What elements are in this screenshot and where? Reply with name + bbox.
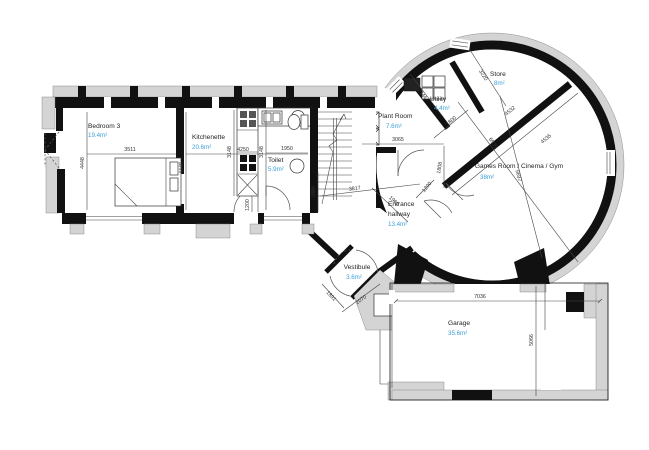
room-label-garage: Garage (448, 320, 470, 327)
window-icon (86, 213, 142, 224)
room-area-games-room: 38m² (480, 174, 494, 181)
wing-north-wall (53, 86, 377, 108)
room-label-utility: Utility (430, 96, 447, 103)
dim-units-recess: 1200 (245, 199, 251, 211)
room-label-bedroom3: Bedroom 3 (88, 123, 121, 130)
rear-door-opening (541, 374, 561, 390)
dim-plant-width: 3065 (392, 137, 404, 143)
dim-units-run-left: 3148 (227, 146, 233, 158)
garage-zone (388, 283, 608, 400)
room-area-vestibule: 3.6m² (346, 274, 362, 281)
masonry-pier (566, 292, 584, 312)
room-label-vestibule: Vestibule (344, 264, 371, 271)
bed-icon (115, 158, 181, 206)
room-area-plant-room: 7.6m² (386, 123, 402, 130)
dim-toilet-width: 1950 (281, 146, 293, 152)
dim-garage-depth: 5066 (529, 334, 535, 346)
dim-garage-width: 7036 (474, 294, 486, 300)
wing-south-wall (62, 213, 314, 238)
dim-kitchenette-depth: 4448 (179, 162, 185, 174)
room-area-bedroom3: 19.4m² (88, 132, 107, 139)
room-label-plant-room: Plant Room (378, 113, 413, 120)
room-area-entrance: 13.4m² (388, 221, 407, 228)
room-area-utility: 4.4m² (434, 105, 450, 112)
floor-plan-canvas: 3511 4250 4448 4448 3148 3148 1950 1200 … (0, 0, 649, 450)
room-area-garage: 35.6m² (448, 330, 467, 337)
dim-stair-hall: 1884 (311, 186, 317, 198)
door-opening (234, 213, 258, 224)
room-label-store: Store (490, 71, 506, 78)
dim-units-run-right: 3148 (259, 146, 265, 158)
washbasin-icon (290, 159, 304, 173)
garage-floor (392, 284, 596, 388)
room-label-kitchenette: Kitchenette (192, 134, 225, 141)
room-area-kitchenette: 20.6m² (192, 144, 211, 151)
garage-door (452, 390, 492, 400)
garage-south-wall (392, 390, 608, 400)
dim-kitchenette-width: 4250 (237, 147, 249, 153)
dim-bedroom-depth: 4448 (80, 157, 86, 169)
dim-vestibule-a: 1891 (325, 290, 337, 303)
side-door-opening (389, 290, 395, 304)
window-icon (604, 150, 615, 176)
room-label-entrance-line1: Entrance (388, 201, 415, 208)
room-label-entrance-line2: hallway (388, 211, 411, 218)
room-area-toilet: 5.9m² (268, 166, 284, 173)
room-label-toilet: Toilet (268, 157, 284, 164)
wc-icon (288, 115, 300, 130)
wing-floor (56, 97, 376, 213)
room-label-games-room: Games Room / Cinema / Gym (475, 163, 564, 170)
sink-icon (262, 111, 282, 124)
window-icon (264, 213, 302, 224)
room-area-store: 8m² (494, 80, 505, 87)
garage-east-wall (596, 284, 608, 400)
dim-bedroom-width: 3511 (124, 147, 135, 153)
wc-cistern-icon (301, 115, 308, 129)
